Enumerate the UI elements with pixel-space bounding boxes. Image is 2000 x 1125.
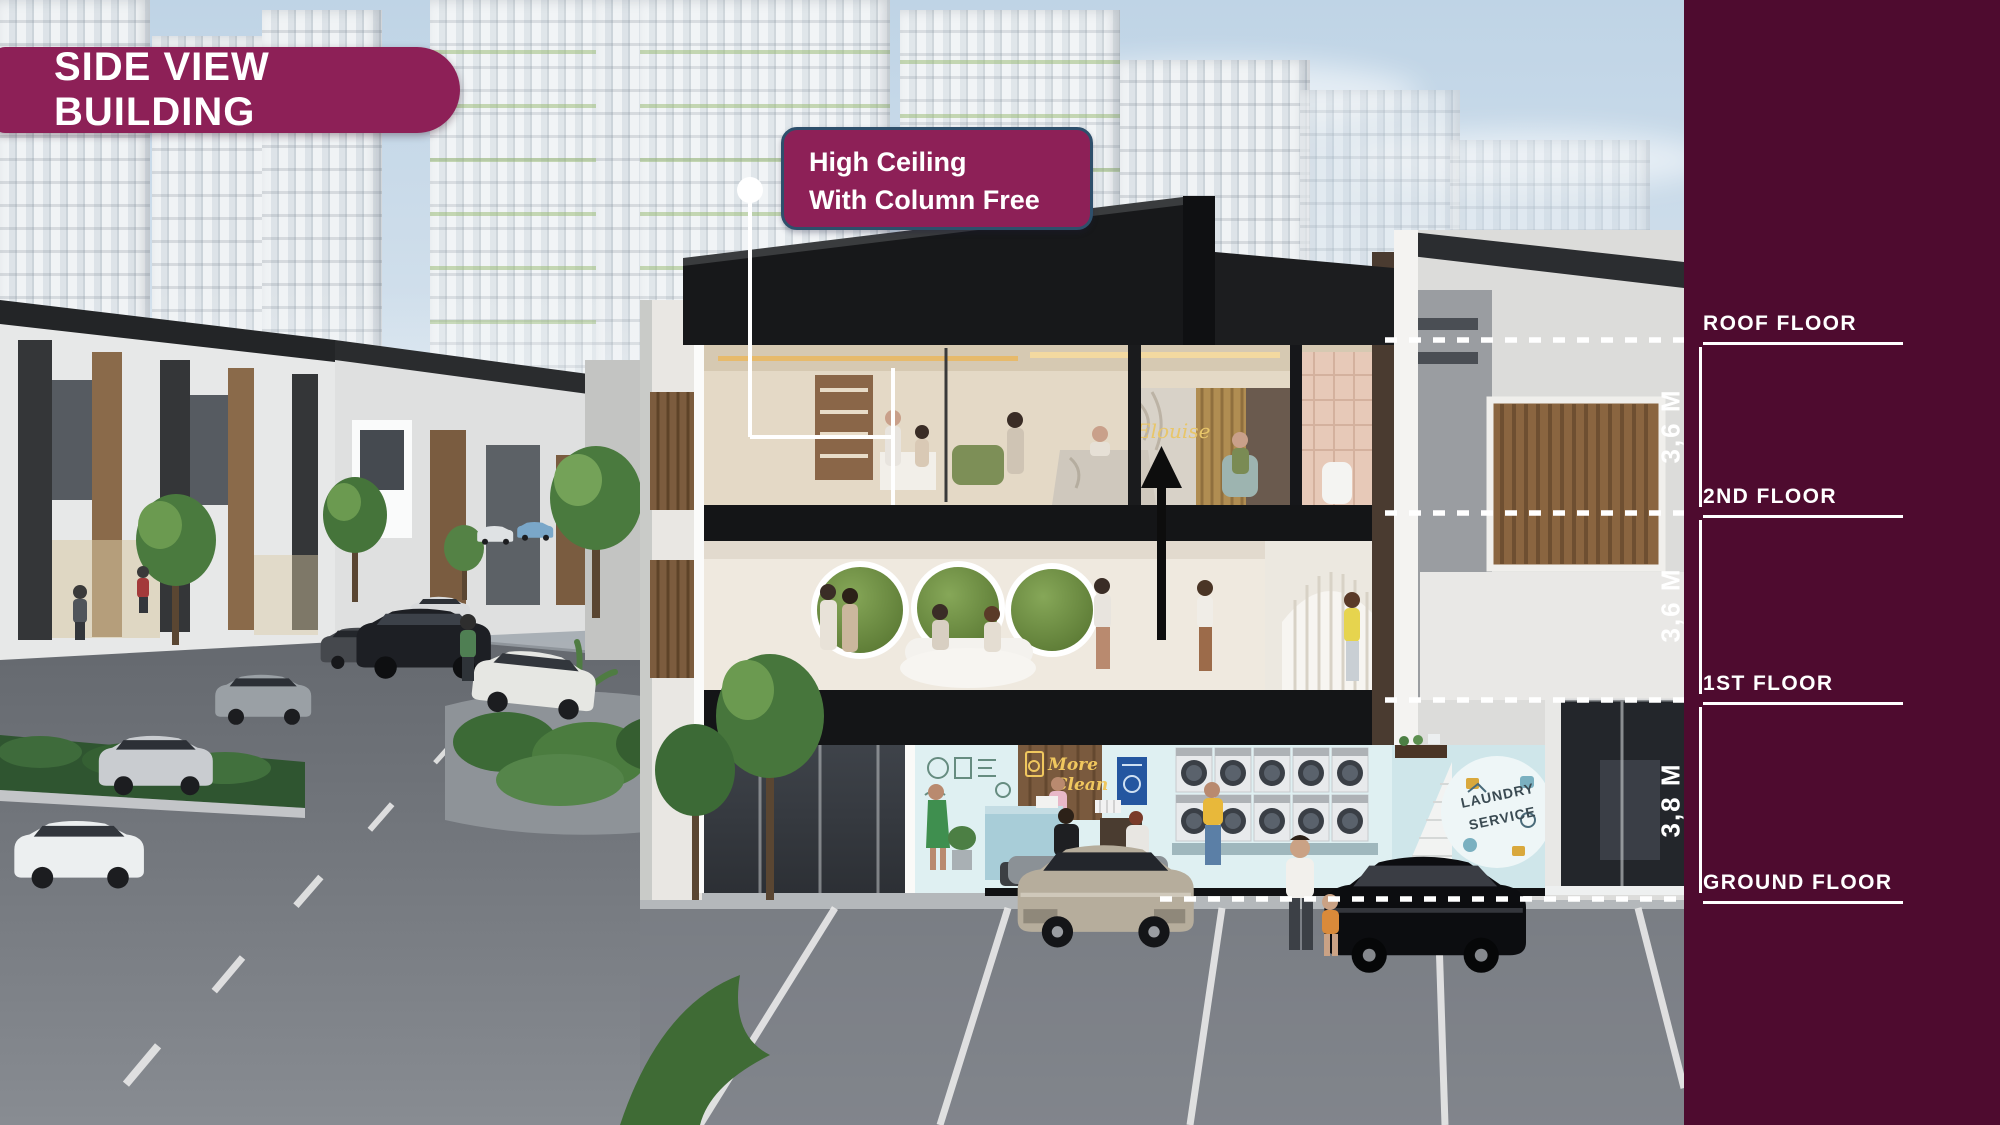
label-1st-floor: 1ST FLOOR: [1703, 672, 1903, 705]
label-2nd-floor: 2ND FLOOR: [1703, 485, 1903, 518]
page-title: SIDE VIEW BUILDING: [54, 45, 460, 135]
callout-line-1: High Ceiling: [809, 143, 1090, 181]
dim-roof-2nd: 3,6 M: [1656, 388, 1687, 463]
dim-line-roof-2nd: [1699, 347, 1702, 507]
brochure-page: Elouise: [0, 0, 2000, 1125]
callout-line-2: With Column Free: [809, 181, 1090, 219]
dim-2nd-1st: 3,6 M: [1656, 567, 1687, 642]
callout-anchor-dot: [737, 177, 763, 203]
washing-machines: [1172, 748, 1378, 855]
dim-line-2nd-1st: [1699, 520, 1702, 694]
salon-sign: Elouise: [1135, 419, 1210, 443]
dim-1st-ground: 3,8 M: [1656, 762, 1687, 837]
label-roof-floor: ROOF FLOOR: [1703, 312, 1903, 345]
floor-slab: [694, 505, 1394, 541]
label-ground-floor: GROUND FLOOR: [1703, 871, 1903, 904]
dim-line-1st-ground: [1699, 707, 1702, 893]
side-band: [1684, 0, 2000, 1125]
second-floor-salon: Elouise: [700, 345, 1394, 507]
high-ceiling-callout: High Ceiling With Column Free: [781, 127, 1093, 230]
left-shophouse-row: [0, 300, 648, 660]
title-badge: SIDE VIEW BUILDING: [0, 47, 460, 133]
svg-text:More: More: [1047, 755, 1098, 775]
first-floor-spa: [700, 541, 1394, 690]
